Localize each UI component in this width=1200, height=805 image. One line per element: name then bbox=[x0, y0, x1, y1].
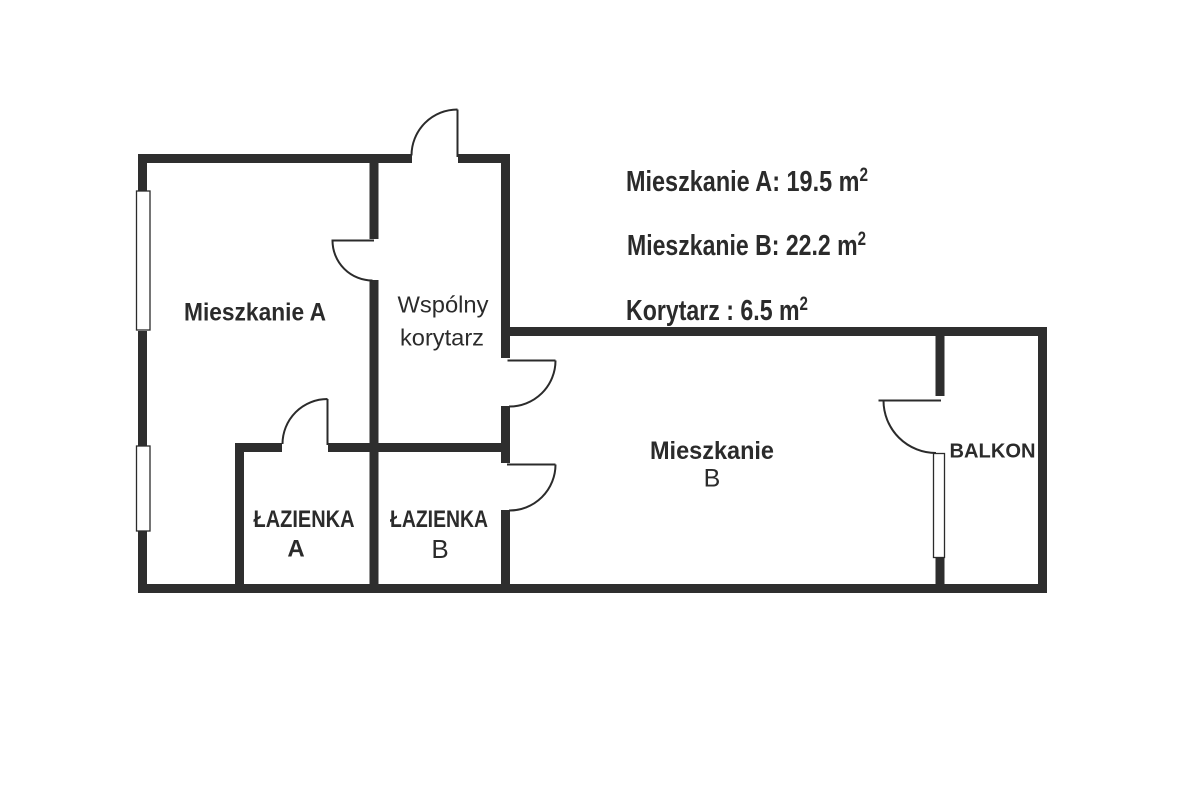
svg-text:Mieszkanie B: 22.2 m2: Mieszkanie B: 22.2 m2 bbox=[627, 229, 866, 262]
svg-text:Wspólny: Wspólny bbox=[398, 292, 489, 318]
svg-text:Mieszkanie A: 19.5 m2: Mieszkanie A: 19.5 m2 bbox=[626, 165, 868, 198]
svg-text:Korytarz : 6.5 m2: Korytarz : 6.5 m2 bbox=[626, 294, 808, 327]
svg-text:BALKON: BALKON bbox=[950, 440, 1036, 463]
svg-text:Mieszkanie: Mieszkanie bbox=[650, 437, 774, 465]
svg-text:ŁAZIENKA: ŁAZIENKA bbox=[254, 506, 355, 533]
svg-text:Mieszkanie A: Mieszkanie A bbox=[184, 299, 326, 327]
svg-text:ŁAZIENKA: ŁAZIENKA bbox=[390, 506, 488, 533]
svg-text:A: A bbox=[287, 536, 304, 563]
svg-text:B: B bbox=[704, 465, 721, 493]
svg-text:korytarz: korytarz bbox=[400, 325, 484, 351]
svg-text:B: B bbox=[431, 534, 448, 564]
